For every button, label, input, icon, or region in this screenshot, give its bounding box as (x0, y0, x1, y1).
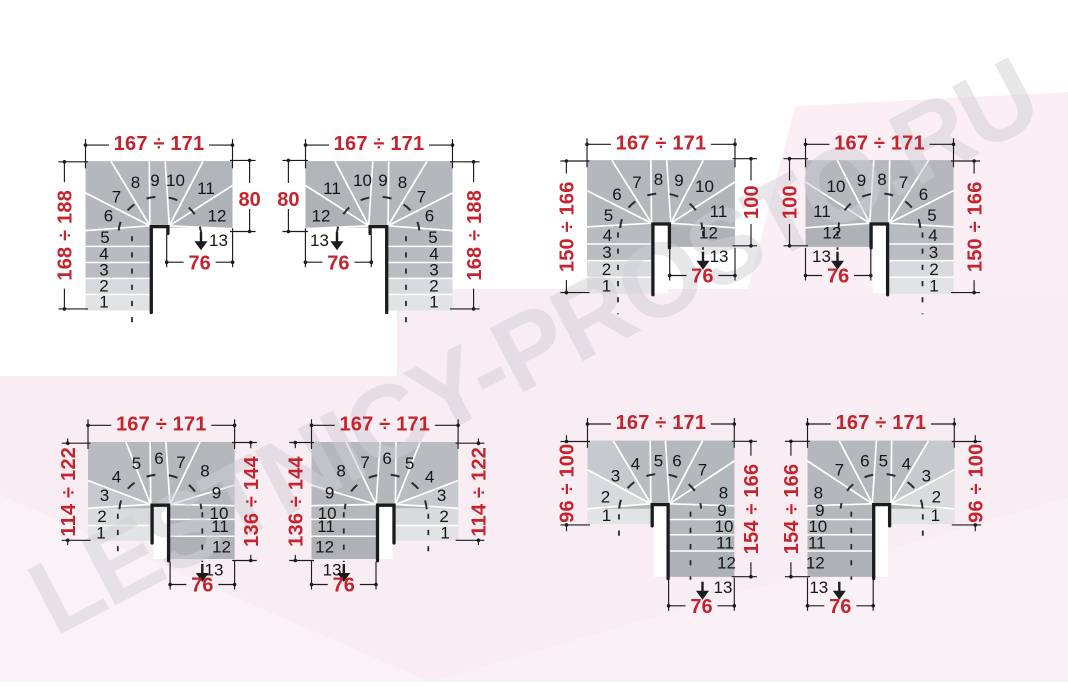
svg-text:8: 8 (719, 483, 728, 502)
svg-text:8: 8 (200, 461, 209, 480)
svg-text:9: 9 (212, 483, 221, 502)
svg-text:154 ÷ 166: 154 ÷ 166 (741, 464, 763, 555)
svg-text:76: 76 (690, 596, 712, 618)
svg-text:100: 100 (741, 185, 763, 219)
svg-text:5: 5 (927, 206, 936, 225)
svg-text:10: 10 (166, 171, 185, 190)
svg-text:13: 13 (205, 560, 224, 579)
svg-text:76: 76 (327, 252, 349, 274)
svg-text:6: 6 (860, 451, 869, 470)
svg-text:6: 6 (382, 449, 391, 468)
svg-text:7: 7 (698, 460, 707, 479)
svg-text:10: 10 (827, 177, 846, 196)
svg-text:8: 8 (654, 170, 663, 189)
svg-text:11: 11 (710, 202, 728, 221)
svg-text:7: 7 (899, 173, 908, 192)
svg-text:4: 4 (425, 467, 434, 486)
svg-text:80: 80 (238, 189, 260, 211)
svg-text:8: 8 (336, 461, 345, 480)
svg-text:96 ÷ 100: 96 ÷ 100 (966, 444, 988, 523)
svg-text:12: 12 (315, 537, 334, 556)
svg-text:96 ÷ 100: 96 ÷ 100 (557, 444, 579, 523)
svg-text:7: 7 (835, 460, 844, 479)
svg-text:13: 13 (710, 247, 729, 266)
svg-text:12: 12 (823, 223, 842, 242)
svg-text:7: 7 (417, 187, 426, 206)
svg-text:12: 12 (312, 206, 331, 225)
svg-text:1: 1 (602, 276, 611, 295)
svg-text:167 ÷ 171: 167 ÷ 171 (116, 413, 207, 435)
svg-text:7: 7 (632, 173, 641, 192)
svg-text:1: 1 (602, 506, 611, 525)
svg-text:167 ÷ 171: 167 ÷ 171 (836, 412, 927, 434)
svg-text:3: 3 (922, 466, 931, 485)
svg-text:8: 8 (398, 173, 407, 192)
svg-text:76: 76 (829, 596, 851, 618)
svg-text:11: 11 (808, 533, 826, 552)
svg-text:76: 76 (188, 252, 210, 274)
svg-text:10: 10 (353, 171, 372, 190)
svg-text:11: 11 (211, 517, 229, 536)
svg-text:76: 76 (827, 266, 849, 288)
svg-text:11: 11 (813, 202, 831, 221)
svg-text:6: 6 (612, 185, 621, 204)
svg-text:12: 12 (212, 537, 231, 556)
svg-text:13: 13 (209, 231, 228, 250)
svg-text:8: 8 (877, 170, 886, 189)
svg-text:168 ÷ 188: 168 ÷ 188 (464, 190, 486, 281)
svg-text:11: 11 (317, 517, 335, 536)
svg-text:6: 6 (154, 449, 163, 468)
svg-text:13: 13 (323, 560, 342, 579)
svg-text:167 ÷ 171: 167 ÷ 171 (834, 132, 925, 154)
svg-text:3: 3 (437, 486, 446, 505)
svg-text:13: 13 (310, 231, 329, 250)
svg-text:1: 1 (440, 523, 449, 542)
svg-text:167 ÷ 171: 167 ÷ 171 (616, 412, 707, 434)
svg-text:5: 5 (879, 451, 888, 470)
svg-text:1: 1 (96, 523, 105, 542)
svg-text:114 ÷ 122: 114 ÷ 122 (58, 447, 80, 537)
svg-text:5: 5 (654, 451, 663, 470)
svg-text:8: 8 (814, 483, 823, 502)
svg-text:8: 8 (131, 173, 140, 192)
svg-text:150 ÷ 166: 150 ÷ 166 (557, 181, 579, 272)
svg-text:167 ÷ 171: 167 ÷ 171 (616, 132, 707, 154)
svg-text:2: 2 (932, 487, 941, 506)
svg-text:6: 6 (672, 451, 681, 470)
svg-text:2: 2 (601, 487, 610, 506)
svg-text:167 ÷ 171: 167 ÷ 171 (339, 413, 430, 435)
svg-text:9: 9 (378, 171, 387, 190)
svg-text:12: 12 (806, 553, 825, 572)
svg-text:150 ÷ 166: 150 ÷ 166 (964, 181, 986, 272)
svg-text:13: 13 (809, 578, 828, 597)
svg-text:1: 1 (931, 506, 940, 525)
svg-text:10: 10 (695, 177, 714, 196)
svg-text:13: 13 (714, 578, 733, 597)
svg-text:167 ÷ 171: 167 ÷ 171 (114, 133, 205, 155)
svg-text:136 ÷ 144: 136 ÷ 144 (241, 456, 263, 547)
svg-text:11: 11 (197, 179, 215, 198)
svg-text:7: 7 (176, 453, 185, 472)
svg-text:1: 1 (429, 292, 438, 311)
svg-text:12: 12 (208, 206, 227, 225)
svg-text:76: 76 (691, 266, 713, 288)
svg-text:7: 7 (360, 453, 369, 472)
svg-text:3: 3 (100, 486, 109, 505)
svg-text:9: 9 (674, 171, 683, 190)
svg-text:4: 4 (631, 454, 640, 473)
svg-text:154 ÷ 166: 154 ÷ 166 (781, 464, 803, 555)
svg-text:1: 1 (99, 292, 108, 311)
svg-text:4: 4 (902, 454, 911, 473)
svg-text:5: 5 (132, 454, 141, 473)
svg-text:6: 6 (425, 206, 434, 225)
svg-text:5: 5 (604, 206, 613, 225)
svg-text:136 ÷ 144: 136 ÷ 144 (286, 456, 308, 547)
svg-text:1: 1 (929, 276, 938, 295)
svg-text:80: 80 (277, 189, 299, 211)
svg-text:6: 6 (919, 185, 928, 204)
svg-text:7: 7 (112, 187, 121, 206)
svg-text:100: 100 (780, 185, 802, 219)
svg-text:12: 12 (717, 553, 736, 572)
svg-text:9: 9 (150, 171, 159, 190)
svg-text:168 ÷ 188: 168 ÷ 188 (55, 190, 77, 281)
svg-text:11: 11 (323, 179, 341, 198)
svg-text:3: 3 (611, 466, 620, 485)
svg-text:9: 9 (857, 171, 866, 190)
svg-text:12: 12 (699, 223, 718, 242)
svg-text:11: 11 (716, 533, 734, 552)
svg-text:114 ÷ 122: 114 ÷ 122 (469, 447, 491, 537)
svg-text:6: 6 (104, 206, 113, 225)
svg-text:167 ÷ 171: 167 ÷ 171 (334, 133, 425, 155)
svg-text:9: 9 (325, 483, 334, 502)
svg-text:4: 4 (112, 467, 121, 486)
svg-text:5: 5 (405, 454, 414, 473)
svg-text:13: 13 (812, 247, 831, 266)
